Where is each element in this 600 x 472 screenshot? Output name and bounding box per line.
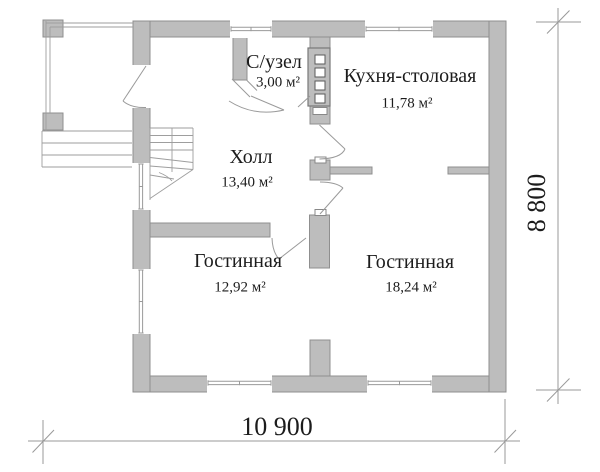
- room-label-bathroom: С/узел: [246, 52, 302, 72]
- room-label-living-room-left: Гостинная: [194, 251, 282, 271]
- dimension-width-text: 10 900: [241, 414, 313, 440]
- room-area-living-room-right: 18,24 м²: [385, 281, 437, 296]
- room-area-living-room-left: 12,92 м²: [214, 281, 266, 296]
- dimension-height-text: 8 800: [524, 174, 550, 233]
- room-label-kitchen-dining: Кухня-столовая: [344, 66, 477, 86]
- room-area-bathroom: 3,00 м²: [256, 76, 300, 91]
- room-label-hall: Холл: [230, 147, 273, 167]
- room-label-living-room-right: Гостинная: [366, 252, 454, 272]
- room-area-kitchen-dining: 11,78 м²: [382, 97, 433, 112]
- staircase: [150, 128, 193, 200]
- floor-plan: С/узел 3,00 м² Кухня-столовая 11,78 м² Х…: [0, 0, 600, 472]
- vent-shaft-block: [308, 48, 330, 106]
- room-area-hall: 13,40 м²: [221, 176, 273, 191]
- porch: [42, 20, 133, 167]
